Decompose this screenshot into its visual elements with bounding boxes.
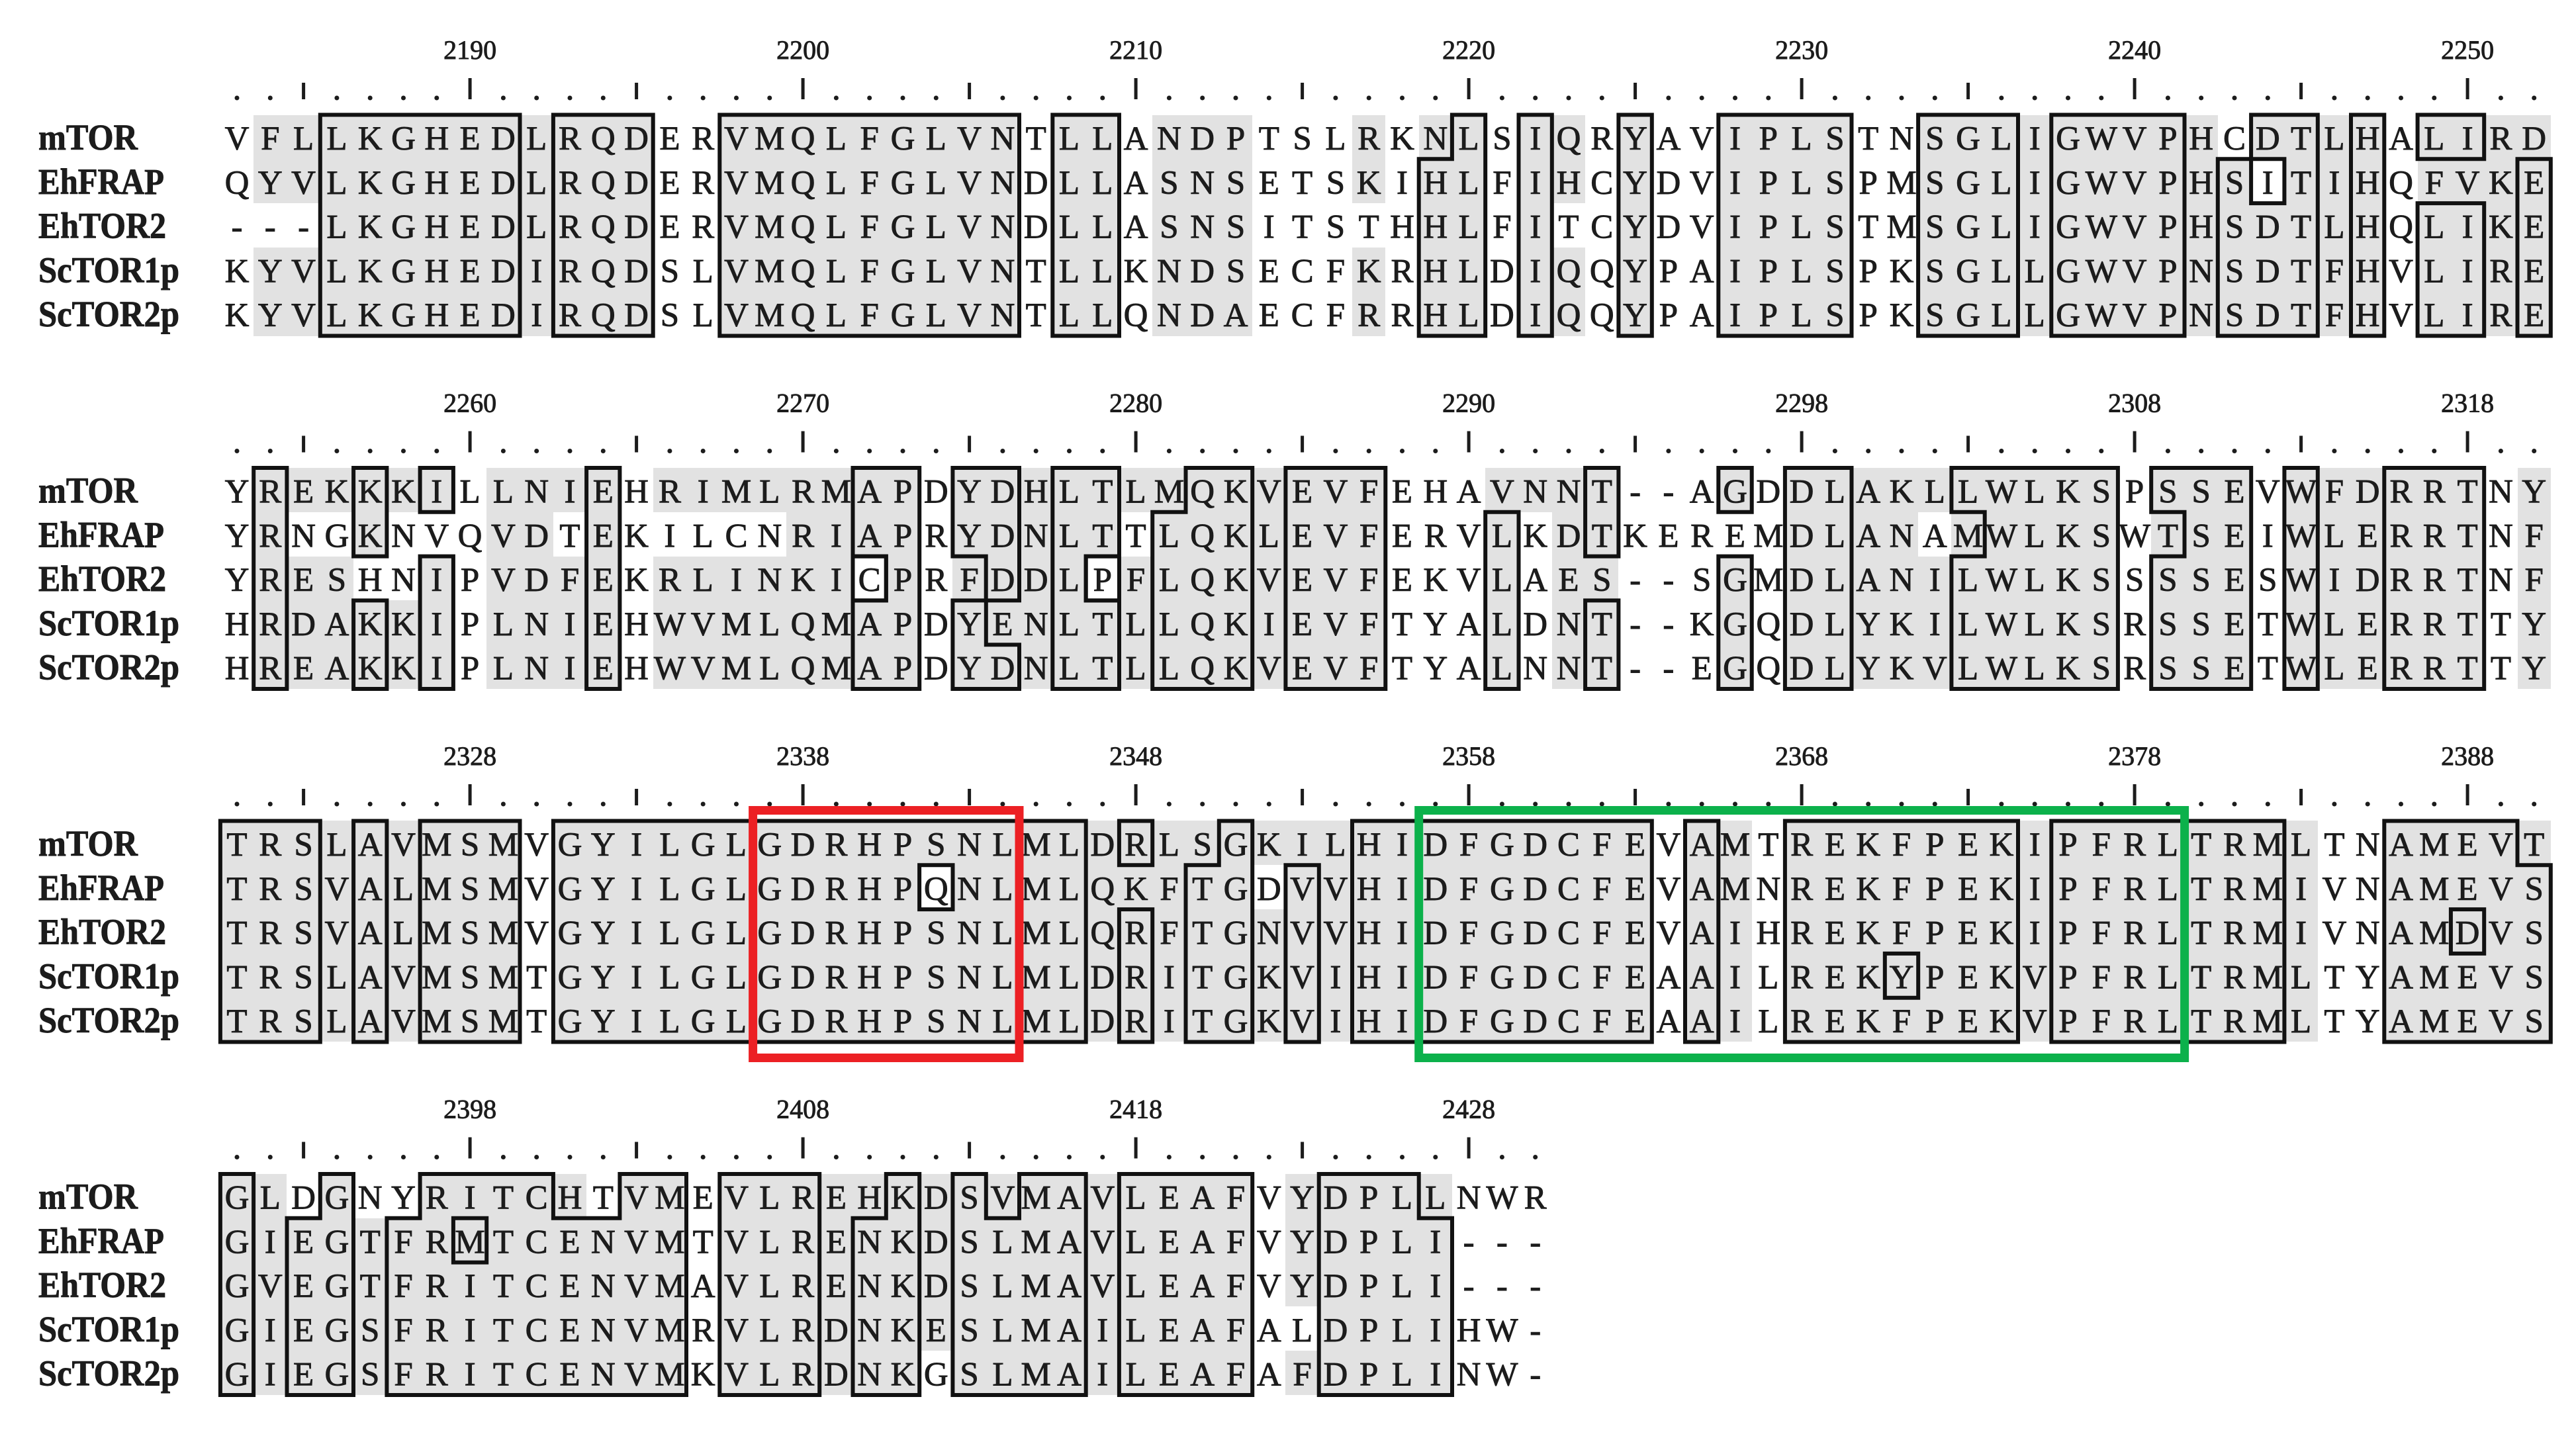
svg-text:mTOR: mTOR	[38, 117, 138, 158]
svg-text:2328: 2328	[443, 741, 496, 771]
svg-text:mTOR: mTOR	[38, 1177, 138, 1217]
svg-text:EhTOR2: EhTOR2	[38, 1265, 166, 1305]
svg-text:ScTOR1p: ScTOR1p	[38, 603, 179, 643]
svg-text:2200: 2200	[776, 35, 829, 65]
svg-text:mTOR: mTOR	[38, 823, 138, 864]
svg-text:2250: 2250	[2441, 35, 2494, 65]
svg-text:2240: 2240	[2108, 35, 2161, 65]
svg-text:ScTOR1p: ScTOR1p	[38, 956, 179, 996]
svg-text:2388: 2388	[2441, 741, 2494, 771]
svg-text:2298: 2298	[1775, 388, 1828, 418]
svg-text:2220: 2220	[1442, 35, 1495, 65]
svg-text:2378: 2378	[2108, 741, 2161, 771]
svg-text:EhTOR2: EhTOR2	[38, 559, 166, 599]
svg-text:ScTOR2p: ScTOR2p	[38, 294, 179, 334]
svg-text:ScTOR2p: ScTOR2p	[38, 1000, 179, 1040]
svg-text:EhFRAP: EhFRAP	[38, 1220, 164, 1261]
svg-text:EhTOR2: EhTOR2	[38, 912, 166, 952]
svg-text:2338: 2338	[776, 741, 829, 771]
svg-text:2408: 2408	[776, 1095, 829, 1124]
svg-text:2230: 2230	[1775, 35, 1828, 65]
svg-text:EhFRAP: EhFRAP	[38, 868, 164, 908]
svg-text:2358: 2358	[1442, 741, 1495, 771]
svg-text:2210: 2210	[1109, 35, 1162, 65]
svg-text:2308: 2308	[2108, 388, 2161, 418]
svg-text:2270: 2270	[776, 388, 829, 418]
svg-text:ScTOR1p: ScTOR1p	[38, 1309, 179, 1349]
svg-text:ScTOR2p: ScTOR2p	[38, 1353, 179, 1394]
svg-text:2348: 2348	[1109, 741, 1162, 771]
svg-text:2280: 2280	[1109, 388, 1162, 418]
svg-text:EhFRAP: EhFRAP	[38, 514, 164, 555]
svg-text:2398: 2398	[443, 1095, 496, 1124]
svg-text:mTOR: mTOR	[38, 471, 138, 511]
svg-text:2418: 2418	[1109, 1095, 1162, 1124]
svg-text:2318: 2318	[2441, 388, 2494, 418]
svg-text:2290: 2290	[1442, 388, 1495, 418]
svg-text:2190: 2190	[443, 35, 496, 65]
svg-text:EhTOR2: EhTOR2	[38, 206, 166, 246]
svg-text:EhFRAP: EhFRAP	[38, 161, 164, 202]
svg-text:2260: 2260	[443, 388, 496, 418]
svg-text:ScTOR1p: ScTOR1p	[38, 249, 179, 290]
svg-text:2428: 2428	[1442, 1095, 1495, 1124]
svg-text:ScTOR2p: ScTOR2p	[38, 647, 179, 688]
svg-text:2368: 2368	[1775, 741, 1828, 771]
